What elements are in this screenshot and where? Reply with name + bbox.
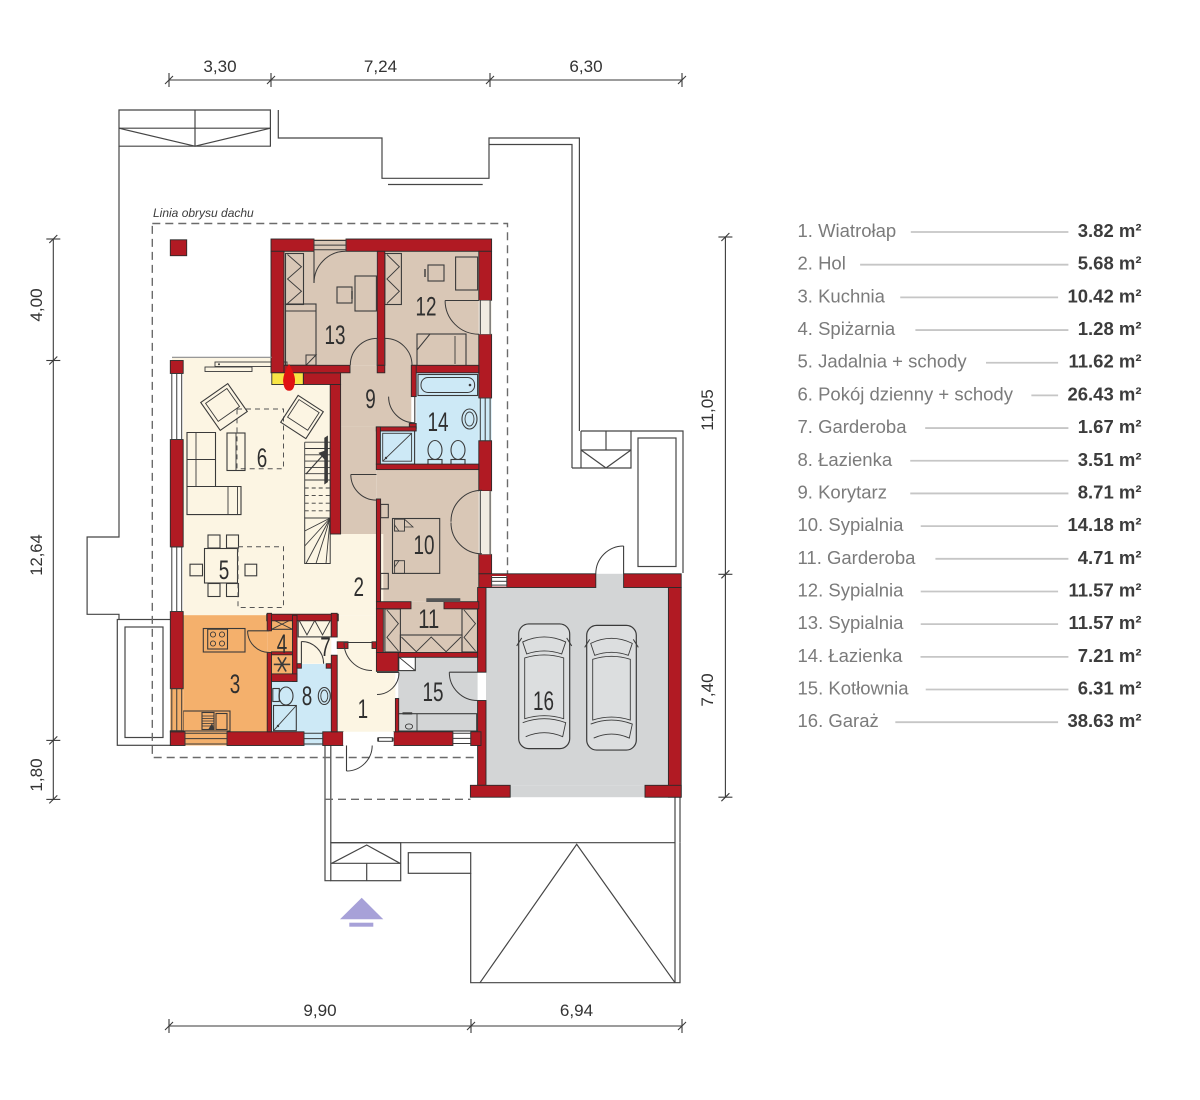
svg-text:5. Jadalnia + schody: 5. Jadalnia + schody: [798, 351, 968, 372]
svg-text:3,30: 3,30: [203, 57, 236, 76]
svg-text:9,90: 9,90: [303, 1001, 336, 1020]
svg-text:4.71 m²: 4.71 m²: [1078, 547, 1142, 568]
svg-text:14.18 m²: 14.18 m²: [1067, 514, 1141, 535]
svg-text:11: 11: [418, 604, 439, 634]
svg-text:9. Korytarz: 9. Korytarz: [798, 481, 887, 502]
svg-text:5: 5: [219, 555, 230, 585]
svg-text:7. Garderoba: 7. Garderoba: [798, 416, 908, 437]
svg-text:Linia obrysu dachu: Linia obrysu dachu: [153, 206, 254, 220]
svg-text:26.43 m²: 26.43 m²: [1067, 383, 1141, 404]
svg-text:3.51 m²: 3.51 m²: [1078, 449, 1142, 470]
svg-text:7,40: 7,40: [698, 673, 717, 706]
svg-text:38.63 m²: 38.63 m²: [1067, 710, 1141, 731]
svg-text:8.71 m²: 8.71 m²: [1078, 481, 1142, 502]
svg-text:4: 4: [277, 629, 288, 659]
svg-text:12. Sypialnia: 12. Sypialnia: [798, 579, 905, 600]
svg-text:15. Kotłownia: 15. Kotłownia: [798, 678, 910, 699]
svg-text:11.57 m²: 11.57 m²: [1068, 612, 1141, 633]
svg-text:6. Pokój dzienny + schody: 6. Pokój dzienny + schody: [798, 383, 1014, 404]
svg-text:8. Łazienka: 8. Łazienka: [798, 449, 893, 470]
svg-text:11.62 m²: 11.62 m²: [1068, 351, 1141, 372]
svg-text:11,05: 11,05: [698, 389, 717, 431]
svg-text:8: 8: [302, 681, 313, 711]
svg-text:14. Łazienka: 14. Łazienka: [798, 645, 904, 666]
svg-text:9: 9: [365, 384, 376, 414]
svg-text:13: 13: [325, 320, 346, 350]
svg-text:15: 15: [423, 677, 444, 707]
svg-text:7.21 m²: 7.21 m²: [1078, 645, 1142, 666]
svg-text:1.28 m²: 1.28 m²: [1078, 318, 1142, 339]
svg-text:2. Hol: 2. Hol: [798, 253, 846, 274]
svg-text:7: 7: [320, 632, 331, 662]
svg-text:10.42 m²: 10.42 m²: [1067, 285, 1141, 306]
svg-text:10. Sypialnia: 10. Sypialnia: [798, 514, 905, 535]
svg-text:11. Garderoba: 11. Garderoba: [798, 547, 917, 568]
svg-text:3. Kuchnia: 3. Kuchnia: [798, 285, 886, 306]
svg-text:16. Garaż: 16. Garaż: [798, 710, 879, 731]
svg-text:12,64: 12,64: [27, 534, 46, 576]
svg-text:14: 14: [428, 407, 449, 437]
svg-text:6,30: 6,30: [569, 57, 602, 76]
svg-text:12: 12: [416, 292, 437, 322]
svg-text:6,94: 6,94: [560, 1001, 593, 1020]
svg-text:5.68 m²: 5.68 m²: [1078, 253, 1142, 274]
svg-text:3.82 m²: 3.82 m²: [1078, 220, 1142, 241]
svg-text:6: 6: [257, 443, 268, 473]
svg-text:1.67 m²: 1.67 m²: [1078, 416, 1142, 437]
svg-text:1,80: 1,80: [27, 758, 46, 791]
svg-text:7,24: 7,24: [364, 57, 397, 76]
svg-text:1. Wiatrołap: 1. Wiatrołap: [798, 220, 897, 241]
svg-text:6.31 m²: 6.31 m²: [1078, 678, 1142, 699]
svg-text:4,00: 4,00: [27, 288, 46, 321]
svg-text:2: 2: [353, 572, 364, 602]
svg-text:10: 10: [414, 530, 435, 560]
svg-text:11.57 m²: 11.57 m²: [1068, 579, 1141, 600]
svg-text:3: 3: [230, 669, 241, 699]
svg-text:1: 1: [358, 694, 369, 724]
svg-text:4. Spiżarnia: 4. Spiżarnia: [798, 318, 896, 339]
svg-text:16: 16: [533, 686, 554, 716]
svg-text:13. Sypialnia: 13. Sypialnia: [798, 612, 905, 633]
